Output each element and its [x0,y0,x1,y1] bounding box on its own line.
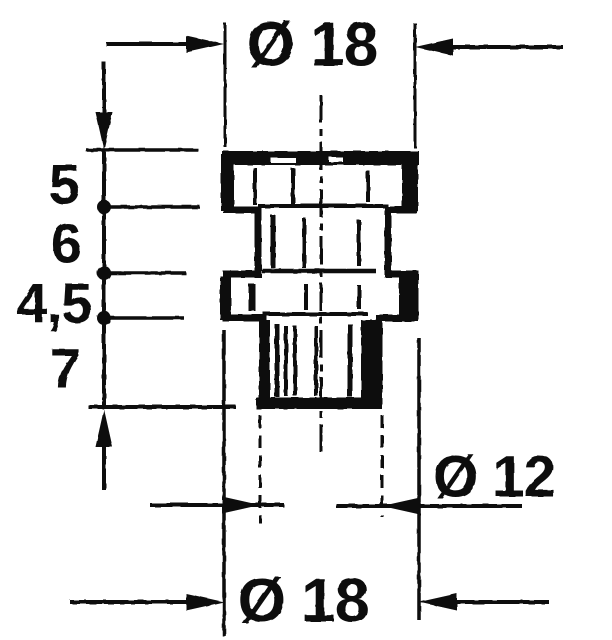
drawing-sheet: Ø 18 5 6 4,5 7 [0,0,612,640]
dim-label-diameter-shank: Ø 12 [433,445,555,510]
arrowhead-right-icon [186,594,224,611]
arrowhead-up-icon [96,409,113,447]
arrowhead-left-icon [419,594,457,611]
arrowhead-down-icon [96,112,113,150]
collar-right-wall [399,275,416,320]
arrowhead-right-icon [186,36,224,53]
technical-drawing-canvas: Ø 18 5 6 4,5 7 [0,0,612,640]
shank-bottom-face [256,398,382,409]
dim-label-height-collar: 4,5 [17,272,92,335]
dim-label-diameter-top: Ø 18 [247,11,377,80]
collar-left-wall [220,276,231,320]
dim-label-height-shank: 7 [50,337,80,400]
arrowhead-left-icon [415,39,453,56]
flange-right-wall [402,154,418,211]
shank-right-knurl-band [361,320,382,402]
dim-label-diameter-bottom: Ø 18 [238,567,368,636]
arrowhead-left-icon [382,498,420,515]
flange-left-wall [221,154,234,211]
dimension-top-diameter: Ø 18 [106,11,563,149]
scan-notch [271,158,296,163]
arrowhead-right-icon [222,497,260,514]
dim-label-height-neck: 6 [51,212,81,275]
dim-label-height-flange: 5 [49,153,79,216]
dimension-shank-diameter: Ø 12 [150,415,555,523]
dimension-chain-left: 5 6 4,5 7 [17,62,236,490]
scan-notch [329,157,343,162]
